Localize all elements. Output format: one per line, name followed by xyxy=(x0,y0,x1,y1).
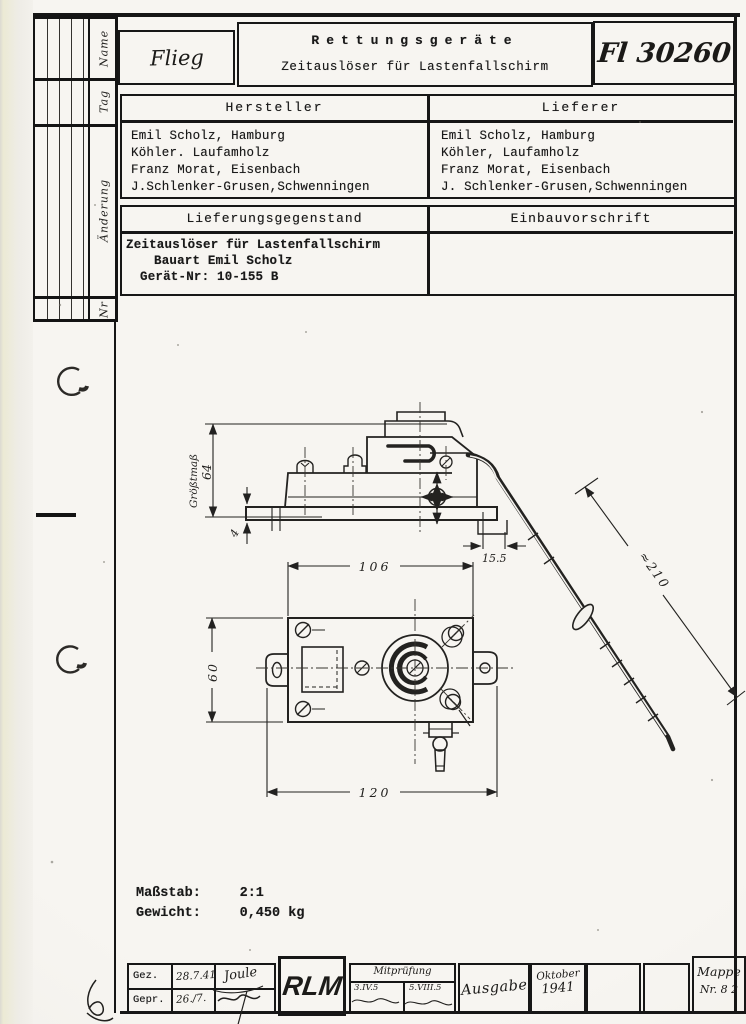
mitpruefung-left-scribble xyxy=(352,999,399,1003)
punch-hole xyxy=(57,368,87,673)
release-cable xyxy=(468,455,673,749)
scan-speckles xyxy=(51,121,713,951)
position-cross-symbol xyxy=(421,472,453,524)
handwritten-scribbles xyxy=(87,980,452,1024)
margin-center-mark xyxy=(36,513,76,517)
dimension-lines xyxy=(205,424,745,797)
gez-signature-underline xyxy=(213,986,263,993)
side-view xyxy=(246,402,507,534)
dimension-labels: Größtmaß 64 4 15.5 106 ≈210 60 120 xyxy=(188,454,673,800)
technical-drawing: Größtmaß 64 4 15.5 106 ≈210 60 120 xyxy=(0,0,746,1024)
margin-flourish xyxy=(87,980,113,1021)
dim-value-60: 60 xyxy=(205,662,220,682)
document-page: Name Tag Änderung Nr Flieg Rettungsgerät… xyxy=(0,0,746,1024)
dim-value-15-5: 15.5 xyxy=(482,552,507,565)
dim-value-4: 4 xyxy=(227,527,242,540)
dim-value-210: ≈210 xyxy=(636,549,673,592)
dim-value-64: 64 xyxy=(199,464,214,480)
gepr-signature-scribble xyxy=(218,995,260,1001)
dim-value-106: 106 xyxy=(359,559,392,574)
mitpruefung-right-scribble xyxy=(405,1001,452,1005)
plan-view xyxy=(256,599,514,771)
dim-value-120: 120 xyxy=(359,785,392,800)
